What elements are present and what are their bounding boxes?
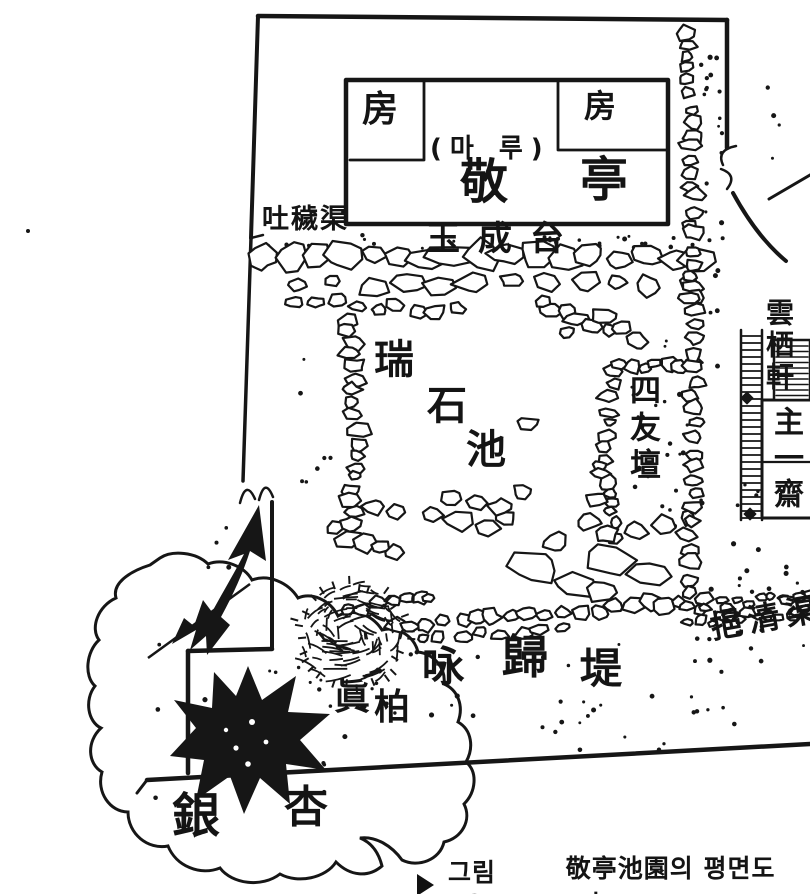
pavilion-name-char2: 亭 (580, 156, 628, 204)
ginkgo-char2: 杏 (284, 786, 328, 830)
sawudan-label: 四友壇 (626, 374, 657, 524)
scanned-plan-page: 吐穢渠 房 房 (마 루) 敬 亭 玉成台 瑞 石 池 四友壇 雲栖軒 主一齋 … (0, 0, 810, 894)
pond-name-char2: 石 (427, 386, 467, 426)
garden-plan-drawing (0, 0, 810, 894)
juniper-char1: 眞 (334, 680, 370, 716)
juniper-char2: 柏 (374, 690, 410, 726)
pavilion-name-char1: 敬 (460, 158, 508, 206)
room-left-label: 房 (362, 92, 398, 128)
figure-caption: 그림 52 敬亭池園의 평면도(가 (417, 849, 810, 894)
embankment-char2: 歸 (502, 634, 548, 680)
juiljae-label: 主一齋 (770, 406, 800, 521)
pond-name-char1: 瑞 (374, 340, 414, 380)
caption-arrow-icon (417, 874, 434, 894)
room-right-label: 房 (584, 90, 616, 122)
embankment-char3: 堤 (580, 648, 622, 690)
figure-title: 敬亭池園의 평면도(가 (566, 849, 810, 894)
outlet-channel-label: 吐穢渠 (262, 206, 349, 233)
pond-name-char3: 池 (466, 430, 506, 470)
embankment-char1: 咏 (422, 646, 464, 688)
entrance-arc (733, 193, 786, 261)
unseoheon-label: 雲栖軒 (764, 298, 792, 408)
figure-number: 그림 52 (448, 853, 542, 894)
terrace-name-label: 玉成台 (426, 222, 582, 256)
ginkgo-char1: 銀 (172, 792, 220, 840)
